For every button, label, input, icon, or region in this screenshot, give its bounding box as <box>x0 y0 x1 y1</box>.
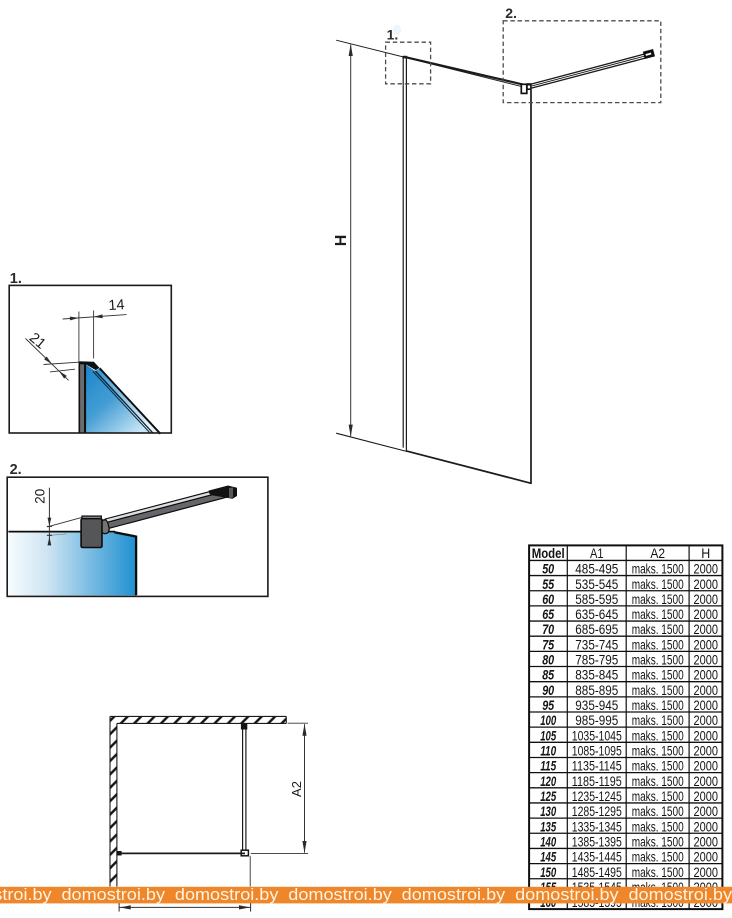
svg-text:2000: 2000 <box>694 759 719 774</box>
svg-text:2000: 2000 <box>694 653 719 668</box>
svg-text:2000: 2000 <box>694 728 719 743</box>
svg-text:685-695: 685-695 <box>575 622 618 637</box>
svg-text:maks. 1500: maks. 1500 <box>632 774 684 789</box>
svg-text:635-645: 635-645 <box>575 607 618 622</box>
svg-text:maks. 1500: maks. 1500 <box>632 835 684 850</box>
svg-text:145: 145 <box>540 850 556 865</box>
svg-text:935-945: 935-945 <box>575 698 618 713</box>
svg-text:585-595: 585-595 <box>575 592 618 607</box>
svg-text:2000: 2000 <box>694 637 719 652</box>
svg-text:domostroi.by: domostroi.by <box>175 886 279 904</box>
svg-text:785-795: 785-795 <box>575 653 618 668</box>
svg-text:2000: 2000 <box>694 592 719 607</box>
svg-text:maks. 1500: maks. 1500 <box>632 668 684 683</box>
svg-text:55: 55 <box>542 577 554 592</box>
svg-text:1235-1245: 1235-1245 <box>572 789 622 804</box>
svg-text:maks. 1500: maks. 1500 <box>632 804 684 819</box>
svg-text:835-845: 835-845 <box>575 668 618 683</box>
svg-text:maks. 1500: maks. 1500 <box>632 622 684 637</box>
svg-text:1435-1445: 1435-1445 <box>572 850 622 865</box>
svg-text:50: 50 <box>542 562 554 577</box>
svg-text:105: 105 <box>540 728 556 743</box>
svg-text:H: H <box>701 545 710 561</box>
svg-text:maks. 1500: maks. 1500 <box>632 592 684 607</box>
svg-text:A2: A2 <box>289 781 304 797</box>
svg-text:maks. 1500: maks. 1500 <box>632 698 684 713</box>
svg-text:maks. 1500: maks. 1500 <box>632 607 684 622</box>
svg-text:2.: 2. <box>505 5 517 21</box>
svg-text:Model: Model <box>532 545 565 561</box>
svg-text:1485-1495: 1485-1495 <box>572 865 622 880</box>
svg-text:maks. 1500: maks. 1500 <box>632 850 684 865</box>
svg-text:domostroi.by: domostroi.by <box>402 886 506 904</box>
svg-text:2000: 2000 <box>694 789 719 804</box>
svg-text:65: 65 <box>542 607 554 622</box>
svg-text:90: 90 <box>542 683 554 698</box>
svg-text:2000: 2000 <box>694 607 719 622</box>
svg-text:2000: 2000 <box>694 622 719 637</box>
svg-text:1385-1395: 1385-1395 <box>572 835 622 850</box>
svg-text:735-745: 735-745 <box>575 637 618 652</box>
svg-text:140: 140 <box>540 835 556 850</box>
svg-text:A1: A1 <box>590 545 604 561</box>
svg-text:75: 75 <box>542 637 554 652</box>
svg-text:2000: 2000 <box>694 744 719 759</box>
svg-text:120: 120 <box>540 774 556 789</box>
svg-text:1185-1195: 1185-1195 <box>572 774 622 789</box>
svg-text:1335-1345: 1335-1345 <box>572 819 622 834</box>
svg-text:2000: 2000 <box>694 774 719 789</box>
svg-text:885-895: 885-895 <box>575 683 618 698</box>
svg-text:maks. 1500: maks. 1500 <box>632 744 684 759</box>
svg-text:2000: 2000 <box>694 683 719 698</box>
svg-text:110: 110 <box>540 744 556 759</box>
svg-text:maks. 1500: maks. 1500 <box>632 637 684 652</box>
svg-text:20: 20 <box>33 489 48 504</box>
svg-text:2000: 2000 <box>694 698 719 713</box>
svg-text:115: 115 <box>540 759 556 774</box>
svg-text:125: 125 <box>540 789 556 804</box>
svg-text:100: 100 <box>540 713 556 728</box>
svg-text:maks. 1500: maks. 1500 <box>632 713 684 728</box>
svg-text:85: 85 <box>542 668 554 683</box>
svg-text:maks. 1500: maks. 1500 <box>632 728 684 743</box>
svg-text:H: H <box>333 235 350 247</box>
svg-text:95: 95 <box>542 698 554 713</box>
svg-text:2000: 2000 <box>694 668 719 683</box>
svg-text:domostroi.by: domostroi.by <box>62 886 166 904</box>
svg-text:60: 60 <box>542 592 554 607</box>
svg-text:2000: 2000 <box>694 865 719 880</box>
svg-text:maks. 1500: maks. 1500 <box>632 653 684 668</box>
svg-text:2000: 2000 <box>694 835 719 850</box>
svg-text:1085-1095: 1085-1095 <box>572 744 622 759</box>
svg-text:2000: 2000 <box>694 713 719 728</box>
svg-text:maks. 1500: maks. 1500 <box>632 577 684 592</box>
svg-text:maks. 1500: maks. 1500 <box>632 865 684 880</box>
svg-text:2000: 2000 <box>694 804 719 819</box>
svg-text:130: 130 <box>540 804 556 819</box>
svg-text:domostroi.by: domostroi.by <box>0 886 52 904</box>
svg-text:80: 80 <box>542 653 554 668</box>
svg-text:2000: 2000 <box>694 850 719 865</box>
svg-text:1035-1045: 1035-1045 <box>572 728 622 743</box>
svg-text:maks. 1500: maks. 1500 <box>632 562 684 577</box>
svg-text:maks. 1500: maks. 1500 <box>632 759 684 774</box>
svg-text:135: 135 <box>540 819 556 834</box>
svg-text:domostroi.by: domostroi.by <box>288 886 392 904</box>
svg-text:70: 70 <box>542 622 554 637</box>
svg-text:2.: 2. <box>10 462 22 478</box>
svg-text:maks. 1500: maks. 1500 <box>632 683 684 698</box>
svg-text:485-495: 485-495 <box>575 562 618 577</box>
svg-text:maks. 1500: maks. 1500 <box>632 819 684 834</box>
svg-text:maks. 1500: maks. 1500 <box>632 789 684 804</box>
svg-text:1285-1295: 1285-1295 <box>572 804 622 819</box>
svg-text:1.: 1. <box>387 26 399 42</box>
svg-text:535-545: 535-545 <box>575 577 618 592</box>
svg-text:domostroi.by: domostroi.by <box>515 886 619 904</box>
svg-text:14: 14 <box>108 297 125 314</box>
svg-text:150: 150 <box>540 865 556 880</box>
svg-text:1135-1145: 1135-1145 <box>572 759 622 774</box>
svg-text:2000: 2000 <box>694 819 719 834</box>
svg-text:domostroi.by: domostroi.by <box>629 886 732 904</box>
svg-text:2000: 2000 <box>694 562 719 577</box>
svg-text:985-995: 985-995 <box>575 713 618 728</box>
svg-text:A2: A2 <box>650 545 665 561</box>
svg-text:2000: 2000 <box>694 577 719 592</box>
